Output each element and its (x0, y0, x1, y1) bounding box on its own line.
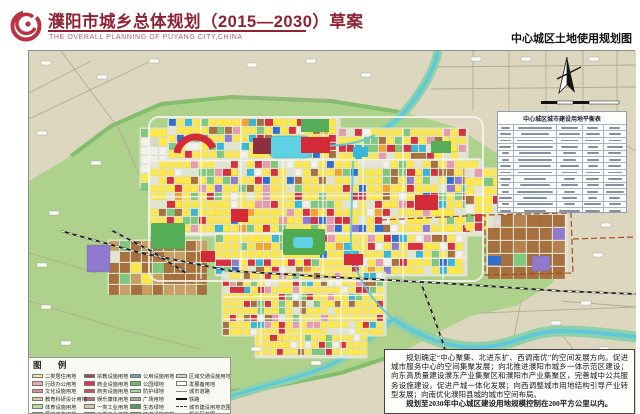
land-parcel (514, 267, 526, 279)
legend-swatch (84, 389, 95, 394)
land-parcel (207, 225, 214, 232)
land-parcel (432, 235, 447, 242)
land-parcel (447, 217, 454, 224)
legend-item: 规划区范围 (176, 410, 231, 414)
land-parcel (392, 259, 399, 266)
land-parcel (223, 209, 230, 216)
table-row (498, 194, 626, 200)
table-cell (498, 195, 513, 200)
land-parcel (326, 349, 332, 355)
land-parcel (447, 193, 454, 200)
land-parcel (237, 301, 243, 307)
land-parcel (384, 251, 391, 258)
land-parcel (361, 349, 367, 355)
table-cell (582, 151, 603, 156)
land-parcel (391, 169, 398, 176)
land-parcel (183, 209, 190, 216)
land-parcel (217, 143, 224, 150)
land-parcel (232, 235, 239, 242)
land-parcel (432, 243, 439, 250)
land-parcel (379, 129, 386, 136)
land-parcel (363, 301, 369, 307)
land-parcel (255, 177, 262, 184)
land-parcel (255, 185, 262, 192)
legend-item: 城市道路 (176, 387, 231, 395)
land-parcel (553, 215, 565, 227)
illegible-text-bar (564, 203, 575, 205)
legend-item: 教育科研设计用地 (32, 395, 84, 403)
land-parcel (272, 287, 278, 293)
land-parcel (207, 177, 214, 184)
land-parcel (247, 185, 254, 192)
land-parcel (223, 322, 229, 328)
land-parcel (251, 322, 257, 328)
legend-label: 商业设施用地 (97, 380, 128, 388)
land-parcel (415, 177, 422, 184)
land-parcel (395, 129, 402, 136)
land-parcel (540, 215, 552, 227)
land-parcel (370, 322, 376, 328)
table-cell (498, 138, 513, 143)
land-parcel (237, 273, 243, 279)
commercial-block (301, 137, 330, 153)
land-parcel (407, 193, 414, 200)
land-parcel (271, 177, 278, 184)
table-cell (513, 183, 556, 188)
land-parcel (151, 217, 158, 224)
land-parcel (217, 119, 232, 126)
table-cell (513, 157, 556, 162)
land-parcel (141, 147, 149, 155)
city-park (431, 141, 451, 153)
land-parcel (423, 161, 430, 168)
table-cell (513, 151, 556, 156)
land-parcel (311, 177, 318, 184)
land-parcel (488, 267, 500, 279)
table-cell (513, 144, 556, 149)
land-parcel (392, 267, 399, 274)
land-parcel (231, 177, 238, 184)
land-parcel (407, 209, 414, 216)
land-parcel (193, 119, 200, 126)
land-parcel (375, 201, 382, 208)
land-parcel (514, 215, 526, 227)
land-parcel (224, 259, 231, 266)
land-parcel (291, 342, 297, 348)
land-parcel (120, 274, 130, 284)
illegible-text-bar (517, 191, 553, 193)
table-row (498, 137, 626, 143)
illegible-text-bar (587, 159, 598, 161)
land-parcel (109, 274, 119, 284)
legend-item: 广场用地 (130, 395, 176, 403)
legend-item: 二类居住用地 (32, 372, 84, 380)
land-parcel (293, 301, 299, 307)
land-parcel (215, 217, 222, 224)
land-parcel (223, 217, 230, 224)
land-parcel (287, 217, 294, 224)
land-parcel (343, 185, 350, 192)
header: 濮阳市城乡总体规划（2015—2030）草案 THE OVERALL PLANN… (0, 0, 640, 50)
land-parcel (286, 315, 292, 321)
land-parcel (431, 161, 438, 168)
land-parcel (312, 259, 319, 266)
table-cell (498, 208, 513, 213)
land-parcel (466, 196, 474, 204)
land-parcel (207, 185, 214, 192)
illegible-text-bar (561, 140, 578, 142)
land-parcel (199, 209, 206, 216)
land-parcel (415, 209, 422, 216)
commercial-block (344, 254, 363, 265)
table-cell (603, 151, 626, 156)
illegible-text-bar (588, 197, 597, 199)
land-parcel (244, 273, 250, 279)
illegible-text-bar (609, 127, 620, 129)
land-parcel (244, 329, 250, 335)
land-parcel (311, 185, 318, 192)
land-parcel (239, 225, 246, 232)
land-parcel (271, 201, 278, 208)
land-parcel (232, 251, 239, 258)
land-parcel (367, 225, 374, 232)
land-parcel (303, 209, 310, 216)
land-parcel (244, 301, 250, 307)
land-parcel (244, 322, 250, 328)
table-cell (556, 125, 582, 130)
land-parcel (286, 301, 292, 307)
land-parcel (215, 209, 222, 216)
legend-label: 医疗卫生用地 (45, 410, 76, 414)
table-row (498, 130, 626, 136)
land-parcel (279, 308, 285, 314)
land-parcel (197, 285, 207, 295)
land-parcel (153, 285, 163, 295)
land-parcel (451, 145, 458, 152)
land-parcel (407, 185, 414, 192)
land-parcel (272, 259, 279, 266)
table-row (498, 162, 626, 168)
land-parcel (295, 169, 302, 176)
land-parcel (343, 169, 350, 176)
land-parcel (264, 251, 271, 258)
land-parcel (403, 153, 410, 160)
land-parcel (375, 169, 382, 176)
land-parcel (284, 342, 290, 348)
land-parcel (327, 161, 334, 168)
land-parcel (223, 225, 230, 232)
land-parcel (314, 322, 320, 328)
legend-label: 城市道路 (189, 387, 210, 395)
table-cell (513, 163, 556, 168)
land-parcel (185, 151, 192, 158)
illegible-text-bar (521, 133, 550, 135)
illegible-text-bar (502, 191, 509, 193)
land-parcel (191, 201, 198, 208)
land-parcel (339, 145, 346, 152)
land-parcel (263, 185, 270, 192)
legend-column: 区域交通设施用地发展备用地城市道路铁路城市建设用地范围规划区范围 (176, 372, 231, 414)
land-parcel (265, 301, 271, 307)
legend-swatch (176, 381, 187, 386)
land-parcel (277, 335, 283, 341)
illegible-text-bar (519, 165, 550, 167)
land-parcel (553, 241, 565, 253)
park-pond (293, 237, 313, 248)
land-parcel (141, 183, 149, 191)
land-parcel (237, 322, 243, 328)
land-parcel (376, 251, 383, 258)
land-parcel (455, 177, 462, 184)
land-parcel (384, 259, 391, 266)
land-parcel (248, 259, 255, 266)
land-parcel (159, 129, 167, 137)
land-parcel (352, 235, 359, 242)
land-parcel (335, 217, 342, 224)
land-parcel (455, 225, 462, 232)
table-cell (603, 138, 626, 143)
land-parcel (191, 161, 198, 168)
land-parcel (256, 243, 263, 250)
land-parcel (230, 308, 236, 314)
land-parcel (251, 308, 257, 314)
illegible-text-bar (500, 140, 510, 142)
land-parcel (169, 135, 176, 142)
land-parcel (270, 342, 276, 348)
table-row (498, 175, 626, 181)
title-underline (48, 30, 306, 32)
illegible-text-bar (608, 152, 621, 154)
illegible-text-bar (587, 184, 599, 186)
land-parcel (295, 161, 302, 168)
legend-title: 图 例 (33, 359, 227, 371)
land-parcel (265, 127, 272, 134)
land-parcel (265, 322, 271, 328)
land-parcel (455, 193, 462, 200)
land-parcel (257, 127, 264, 134)
legend-swatch (130, 397, 141, 402)
table-cell (556, 183, 582, 188)
land-parcel (335, 287, 341, 293)
land-parcel (286, 308, 292, 314)
table-cell (582, 170, 603, 175)
land-parcel (501, 254, 513, 266)
table-cell (603, 125, 626, 130)
land-parcel (371, 137, 378, 144)
table-cell (582, 138, 603, 143)
land-parcel (263, 201, 270, 208)
place-label-chip (247, 63, 257, 67)
land-parcel (447, 225, 454, 232)
table-cell (582, 157, 603, 162)
land-parcel (488, 228, 500, 240)
illegible-text-bar (588, 146, 598, 148)
place-label-chip (521, 57, 531, 61)
planning-notes: 规划确定“中心聚集、北进东扩、西调南优”的空间发展方向。促进城市服务中心的空间集… (384, 349, 635, 414)
business-block (488, 256, 501, 265)
table-cell (498, 144, 513, 149)
land-parcel (407, 177, 414, 184)
land-parcel (237, 315, 243, 321)
land-parcel (391, 201, 398, 208)
land-parcel (142, 263, 152, 273)
land-parcel (419, 129, 426, 136)
land-parcel (488, 241, 500, 253)
land-parcel (251, 301, 257, 307)
land-parcel (207, 161, 214, 168)
land-parcel (343, 209, 350, 216)
land-parcel (455, 201, 462, 208)
land-parcel (201, 151, 208, 158)
land-parcel (191, 177, 198, 184)
land-parcel (272, 315, 278, 321)
land-parcel (233, 135, 240, 142)
land-parcel (336, 259, 343, 266)
land-parcel (277, 349, 283, 355)
legend-label: 娱乐康体用地 (97, 395, 128, 403)
illegible-text-bar (502, 203, 509, 205)
land-parcel (416, 235, 423, 242)
page: 中心城区城市建设用地平衡表 图 例 二类居住用地行政办公用地文化设施用地教育科研… (0, 0, 640, 414)
table-cell (582, 202, 603, 207)
land-parcel (424, 251, 431, 258)
land-parcel (150, 147, 158, 155)
land-parcel (447, 161, 454, 168)
land-parcel (224, 243, 231, 250)
illegible-text-bar (585, 210, 600, 212)
land-parcel (501, 228, 513, 240)
legend-label: 二类居住用地 (45, 372, 76, 380)
city-park (301, 119, 329, 132)
land-parcel (307, 308, 313, 314)
land-parcel (327, 169, 334, 176)
land-parcel (286, 287, 292, 293)
illegible-text-bar (609, 133, 621, 135)
land-parcel (185, 127, 192, 134)
land-parcel (335, 185, 342, 192)
land-parcel (256, 235, 263, 242)
land-parcel (223, 315, 229, 321)
land-parcel (244, 287, 250, 293)
table-cell (498, 170, 513, 175)
land-parcel (193, 127, 200, 134)
table-cell (582, 144, 603, 149)
land-parcel (514, 254, 526, 266)
table-row (498, 182, 626, 188)
legend-label: 发展备用地 (189, 380, 215, 388)
land-parcel (327, 217, 334, 224)
land-parcel (191, 209, 198, 216)
illegible-text-bar (562, 197, 577, 199)
land-parcel (329, 119, 336, 126)
legend-label: 公园绿地 (143, 380, 164, 388)
land-parcel (215, 177, 222, 184)
land-parcel (403, 129, 410, 136)
land-parcel (311, 201, 318, 208)
land-parcel (466, 187, 474, 195)
land-parcel (131, 252, 141, 262)
legend-item: 文化设施用地 (32, 387, 84, 395)
land-parcel (223, 201, 230, 208)
land-parcel (391, 161, 398, 168)
land-parcel (459, 129, 466, 136)
land-parcel (375, 177, 382, 184)
land-parcel (328, 251, 335, 258)
land-parcel (273, 127, 280, 134)
land-parcel (514, 228, 526, 240)
place-label-chip (601, 223, 611, 227)
land-parcel (314, 294, 320, 300)
table-row (498, 188, 626, 194)
land-parcel (167, 217, 174, 224)
land-parcel (427, 129, 434, 136)
land-parcel (466, 178, 474, 186)
place-label-chip (91, 161, 101, 165)
land-parcel (241, 135, 248, 142)
land-parcel (339, 129, 346, 136)
land-parcel (336, 251, 343, 258)
place-label-chip (97, 75, 107, 79)
illegible-text-bar (609, 159, 621, 161)
land-parcel (367, 217, 374, 224)
land-parcel (459, 145, 466, 152)
legend-swatch (130, 404, 141, 409)
land-parcel (293, 322, 299, 328)
land-parcel (307, 294, 313, 300)
land-parcel (287, 161, 294, 168)
land-parcel (175, 217, 182, 224)
land-parcel (186, 285, 196, 295)
land-parcel (392, 235, 399, 242)
commercial-block (201, 251, 215, 262)
land-parcel (263, 161, 270, 168)
land-parcel (347, 153, 354, 160)
place-label-chip (306, 59, 316, 63)
land-parcel (321, 287, 327, 293)
land-parcel (377, 329, 383, 335)
land-balance-table-grid (498, 124, 626, 213)
commercial-block (415, 195, 438, 210)
land-parcel (415, 169, 422, 176)
land-parcel (264, 235, 271, 242)
land-parcel (455, 169, 462, 176)
land-parcel (185, 143, 200, 150)
land-parcel (224, 235, 231, 242)
land-parcel (456, 251, 463, 258)
table-cell (513, 131, 556, 136)
land-parcel (395, 153, 402, 160)
table-cell (498, 189, 513, 194)
legend-column: 宗教设施用地商业设施用地商务设施用地娱乐康体用地一类工业用地二类工业用地 (84, 372, 130, 414)
land-parcel (311, 169, 318, 176)
land-parcel (336, 235, 343, 242)
land-parcel (311, 217, 318, 224)
land-parcel (303, 177, 310, 184)
land-parcel (363, 308, 369, 314)
illegible-text-bar (561, 184, 578, 186)
table-cell (513, 170, 556, 175)
table-cell (498, 202, 513, 207)
land-parcel (209, 151, 216, 158)
table-cell (556, 189, 582, 194)
land-parcel (263, 225, 270, 232)
land-parcel (241, 151, 248, 158)
land-parcel (448, 251, 455, 258)
illegible-text-bar (517, 146, 553, 148)
land-parcel (231, 185, 238, 192)
table-cell (556, 138, 582, 143)
place-label-chip (251, 347, 261, 351)
